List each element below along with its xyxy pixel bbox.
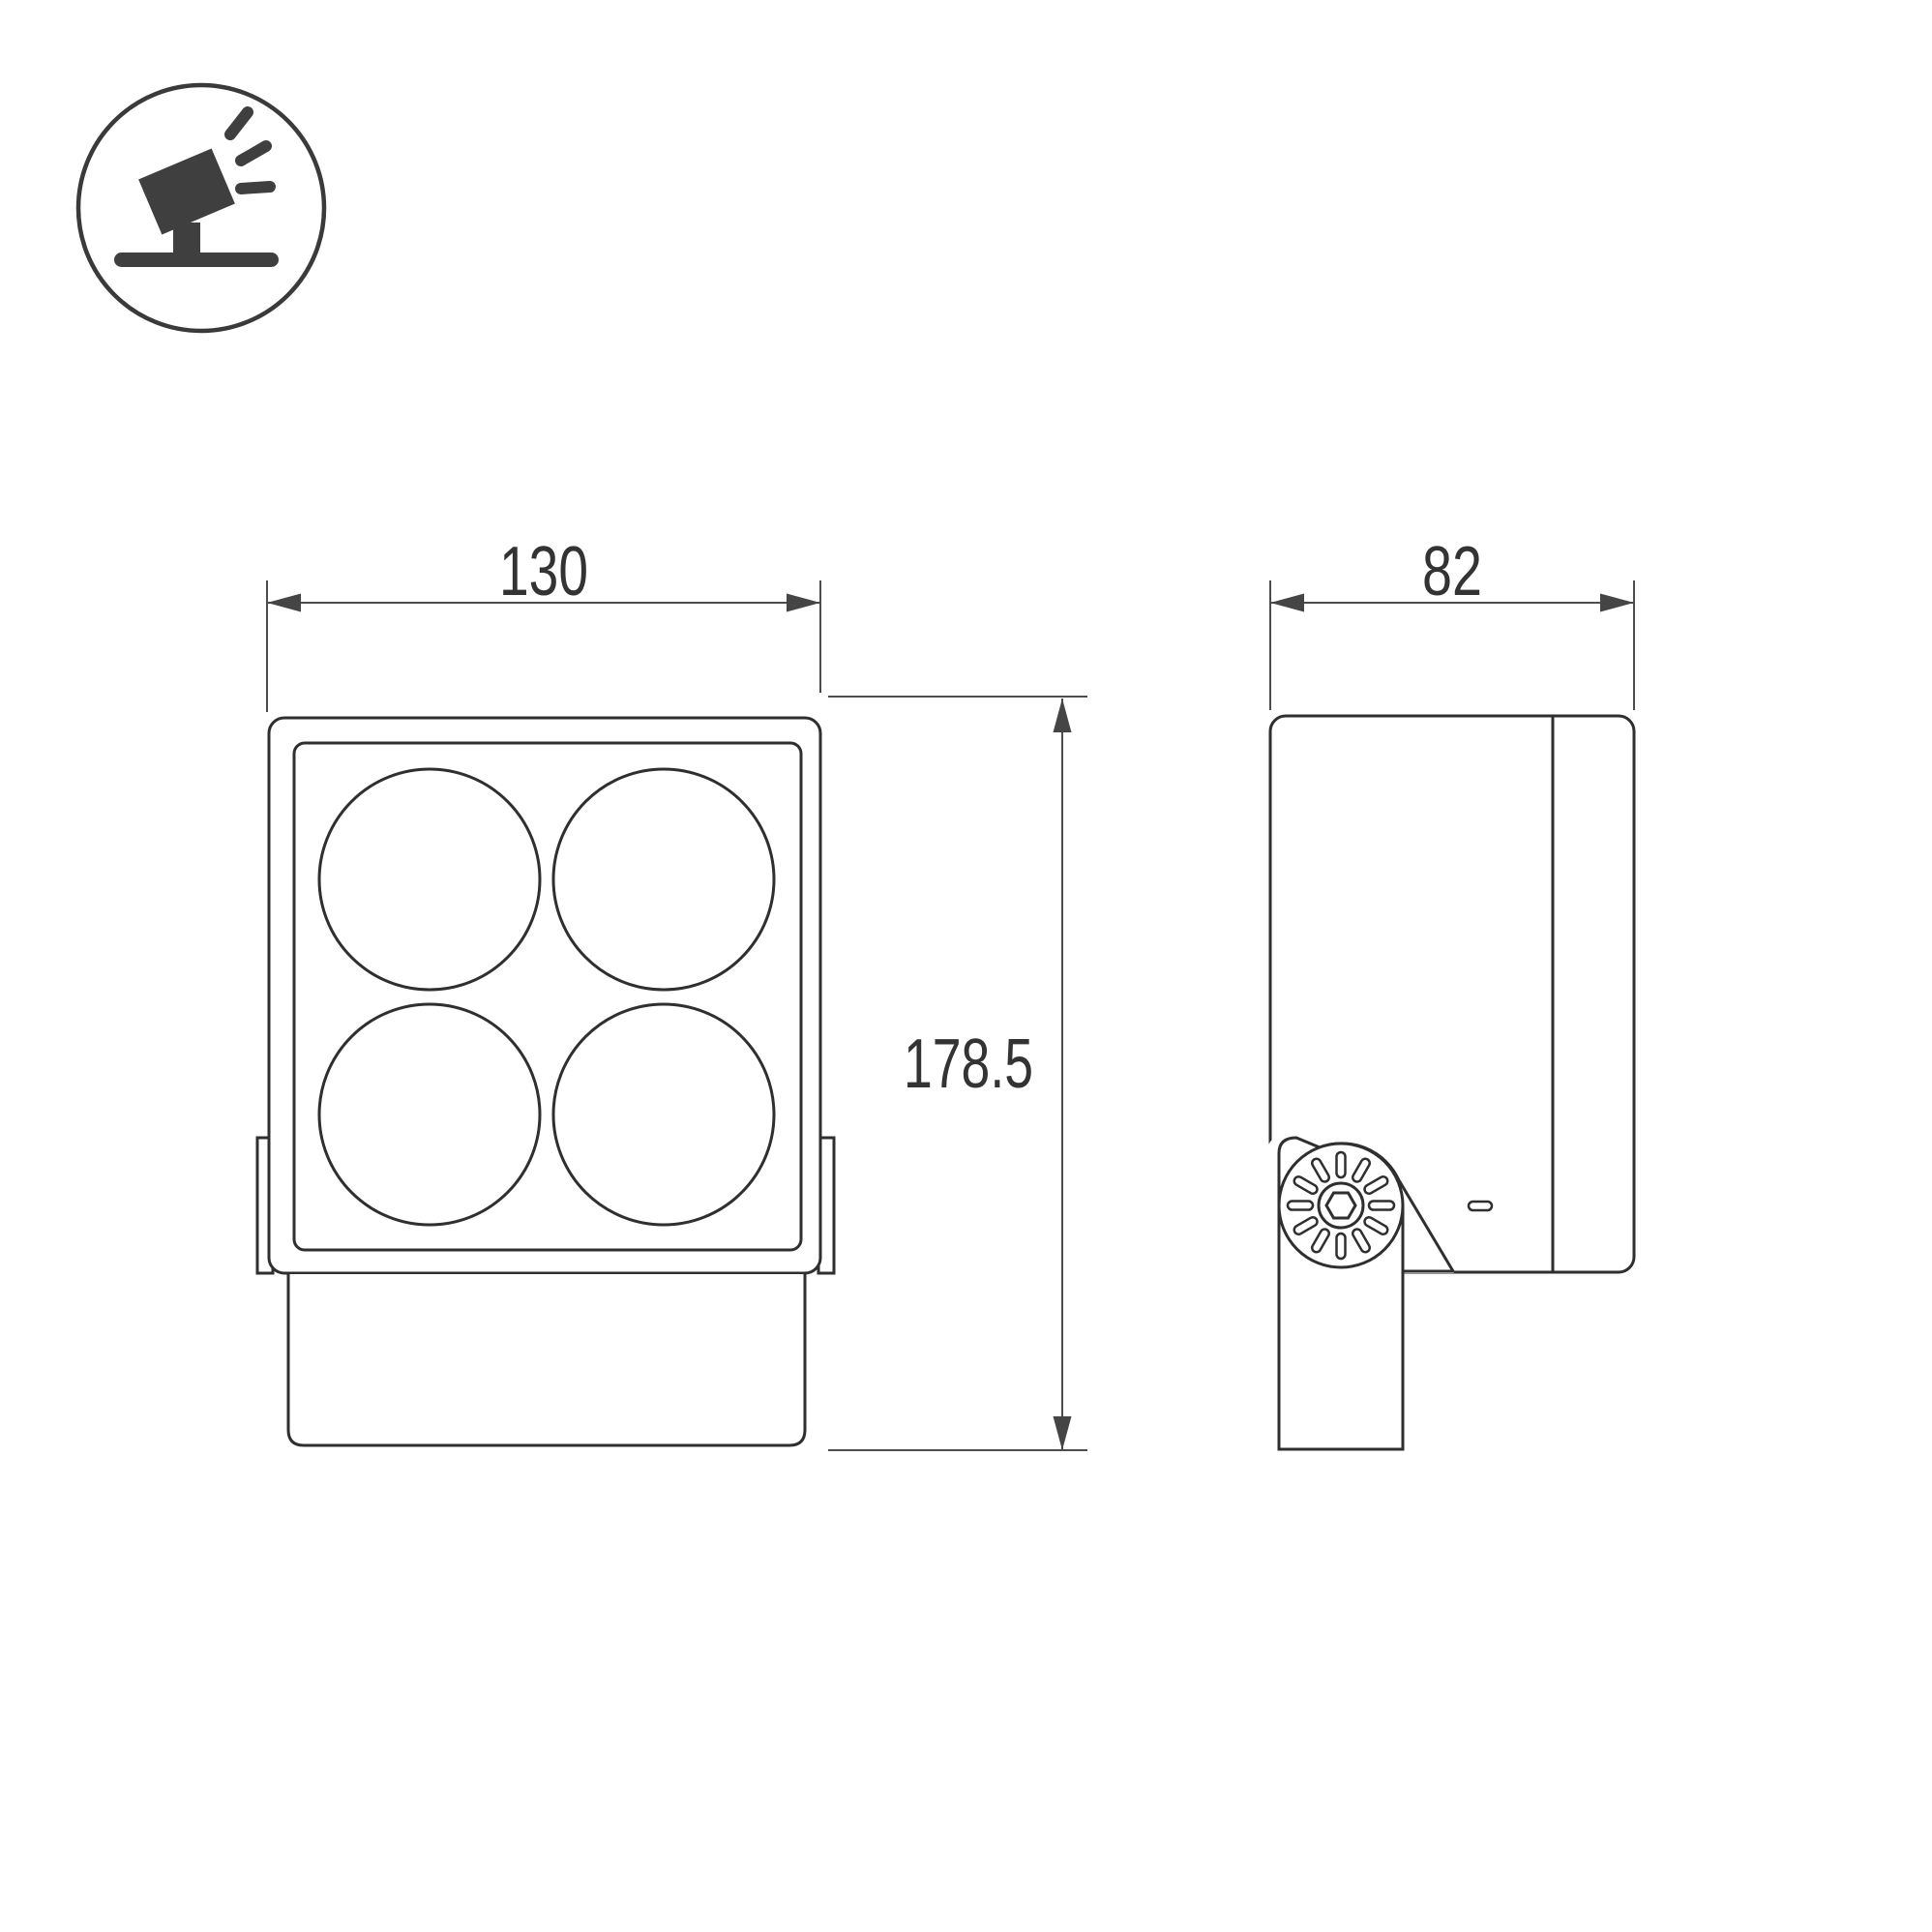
- side-depth-value: 82: [1422, 533, 1482, 610]
- arrowhead-right: [1600, 594, 1634, 612]
- side-view: [1267, 716, 1634, 1449]
- floodlight-icon: [78, 85, 324, 331]
- dimension-front-width: 130: [267, 533, 820, 712]
- icon-light-rays: [230, 112, 270, 189]
- icon-floodlight-head: [138, 148, 235, 234]
- lens-bottom-left: [319, 1004, 540, 1225]
- arrowhead-left: [267, 594, 301, 612]
- technical-drawing-page: 130 82 178.5: [0, 0, 1932, 1932]
- arrowhead-left: [1270, 594, 1304, 612]
- front-view: [257, 718, 834, 1445]
- arrowhead-bottom: [1054, 1416, 1072, 1450]
- arrowhead-top: [1054, 698, 1072, 732]
- arrowhead-right: [787, 594, 820, 612]
- rotation-knob: [1279, 1144, 1403, 1267]
- dimension-front-height: 178.5: [828, 697, 1087, 1450]
- lens-top-right: [553, 769, 774, 990]
- lens-bottom-right: [553, 1004, 774, 1225]
- lens-top-left: [319, 769, 540, 990]
- front-width-value: 130: [499, 533, 588, 610]
- floodlight-dimension-drawing: 130 82 178.5: [0, 0, 1932, 1932]
- icon-floodlight-base: [114, 253, 279, 267]
- knob-hex-socket: [1326, 1193, 1355, 1218]
- front-driver-box: [288, 1274, 805, 1445]
- underside-screw-slot: [1469, 1202, 1492, 1210]
- dimension-side-depth: 82: [1270, 533, 1634, 710]
- front-height-value: 178.5: [904, 1025, 1033, 1103]
